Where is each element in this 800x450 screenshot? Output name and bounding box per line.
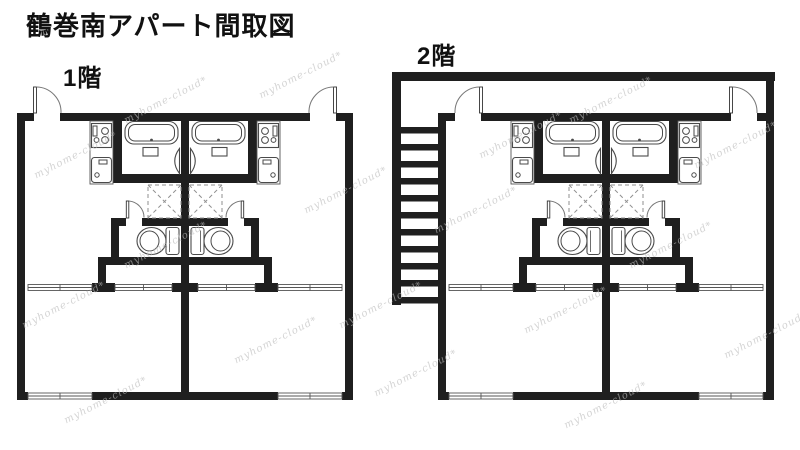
floorplan-canvas xyxy=(0,0,800,450)
entrance-door-icon xyxy=(309,87,337,113)
floor1-label: 1階 xyxy=(63,58,102,93)
entrance-door-icon xyxy=(455,87,483,113)
corridor-walls xyxy=(393,72,775,117)
page-title: 鶴巻南アパート間取図 xyxy=(26,6,295,43)
floor-plan-2f xyxy=(392,72,775,400)
staircase-icon xyxy=(392,72,438,305)
entrance-door-icon xyxy=(34,87,62,113)
floor-plan-1f xyxy=(17,87,353,400)
entrance-door-icon xyxy=(730,87,758,113)
floorplan-page: 鶴巻南アパート間取図 1階 2階 myhome-cloud* myhome-cl… xyxy=(0,0,800,450)
floor2-label: 2階 xyxy=(417,36,456,71)
